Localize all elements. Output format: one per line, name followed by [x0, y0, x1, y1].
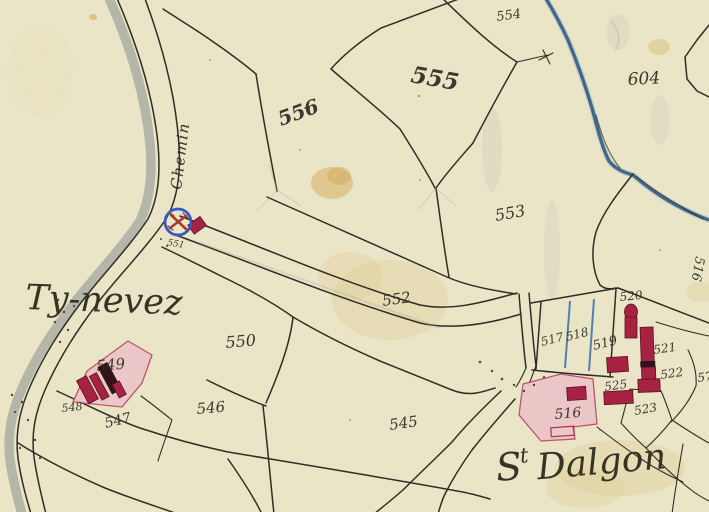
cadastral-map-canvas: Chemin Ty-nevez S t Dalgon 554 555 604 5…	[0, 0, 709, 512]
cadastral-map-sheet: Chemin Ty-nevez S t Dalgon 554 555 604 5…	[0, 0, 709, 512]
paper-grain-overlay	[0, 0, 709, 512]
